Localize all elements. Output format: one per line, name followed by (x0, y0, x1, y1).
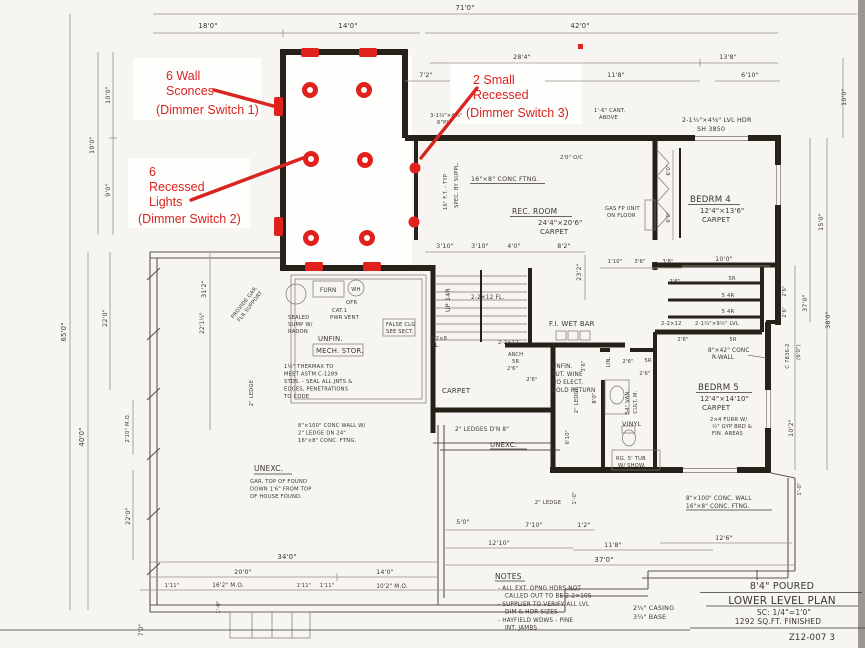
svg-text:3'6": 3'6" (581, 360, 587, 371)
svg-text:TO CODE: TO CODE (283, 394, 309, 400)
svg-text:2'6": 2'6" (639, 371, 650, 377)
svg-text:40'0": 40'0" (78, 427, 86, 446)
svg-text:7'0": 7'0" (139, 624, 145, 636)
svg-text:RADON: RADON (288, 329, 308, 335)
svg-text:2'6": 2'6" (622, 359, 633, 365)
svg-text:Recessed: Recessed (149, 180, 205, 194)
room-label-bedrm4: BEDRM 4 (690, 195, 731, 205)
svg-text:2'10" M.O.: 2'10" M.O. (125, 413, 131, 442)
wall-sconce-symbol (274, 217, 283, 236)
svg-text:2-2×12: 2-2×12 (661, 321, 682, 327)
svg-text:15'0": 15'0" (818, 213, 825, 231)
svg-text:MEET ASTM C-1289: MEET ASTM C-1289 (284, 372, 338, 378)
svg-text:SEE SECT.: SEE SECT. (386, 329, 414, 335)
svg-text:24'4"×20'6": 24'4"×20'6" (538, 219, 582, 227)
svg-text:LIN.: LIN. (606, 356, 612, 367)
sheet-number: Z12-007 3 (789, 633, 835, 643)
svg-text:37'0": 37'0" (802, 294, 809, 312)
room-label-bedrm5: BEDRM 5 (698, 383, 739, 393)
svg-text:9'0": 9'0" (105, 183, 112, 196)
title-block-scale: SC: 1/4"=1'0" (757, 608, 811, 617)
svg-text:37'0": 37'0" (594, 556, 613, 564)
svg-text:ON FLOOR: ON FLOOR (607, 213, 636, 219)
svg-text:5 4R: 5 4R (722, 293, 735, 299)
svg-text:16"×8" CONC. FTNG.: 16"×8" CONC. FTNG. (686, 504, 750, 510)
svg-text:DOWN 1'6" FROM TOP: DOWN 1'6" FROM TOP (250, 487, 312, 493)
wine-cellar-note: UNFIN. (552, 364, 573, 370)
dim-label: 71'0" (455, 4, 474, 12)
dim-label: 14'0" (338, 22, 357, 30)
svg-text:31'2": 31'2" (201, 280, 208, 298)
svg-text:5 4R: 5 4R (722, 309, 735, 315)
svg-text:12'10": 12'10" (488, 540, 510, 547)
svg-text:1'11": 1'11" (165, 583, 180, 589)
svg-text:2'6": 2'6" (782, 285, 788, 296)
dim-label: 42'0" (570, 22, 589, 30)
svg-text:INT. JAMBS: INT. JAMBS (505, 626, 537, 632)
svg-text:5'0": 5'0" (456, 519, 469, 526)
svg-text:SH 3850: SH 3850 (697, 126, 725, 133)
title-block-plan-name: LOWER LEVEL PLAN (728, 595, 836, 607)
scan-edge (858, 0, 865, 648)
svg-text:16"×8" CONC. FTNG.: 16"×8" CONC. FTNG. (298, 438, 357, 444)
svg-text:Sconces: Sconces (166, 84, 214, 98)
svg-text:12'4"×14'10": 12'4"×14'10" (700, 395, 749, 403)
svg-text:10'2": 10'2" (788, 419, 795, 437)
svg-text:Lights: Lights (149, 195, 182, 209)
dim-label: 28'4" (513, 54, 531, 61)
lvl-header-note: 2-1¾"×4⅜" LVL HDR (682, 117, 752, 124)
svg-text:10'0": 10'0" (841, 88, 848, 106)
svg-text:8'2": 8'2" (557, 243, 570, 250)
svg-text:22'0": 22'0" (102, 309, 109, 327)
svg-text:1'-6" CANT.: 1'-6" CANT. (594, 108, 626, 114)
wall-sconce-symbol (359, 48, 377, 57)
svg-text:WH: WH (351, 287, 360, 293)
svg-text:(6'0"): (6'0") (796, 344, 802, 360)
svg-text:5R: 5R (729, 337, 737, 343)
svg-text:Recessed: Recessed (473, 88, 529, 102)
svg-text:22'0": 22'0" (125, 507, 132, 525)
notes-heading: NOTES (495, 572, 522, 581)
svg-text:1'11": 1'11" (320, 583, 335, 589)
svg-text:FL.: FL. (432, 343, 440, 349)
svg-text:10'2" M.O.: 10'2" M.O. (376, 584, 408, 590)
svg-text:FURN: FURN (320, 288, 336, 294)
svg-text:DIM & HDR SIZES: DIM & HDR SIZES (505, 610, 558, 616)
svg-text:20'0": 20'0" (234, 569, 252, 576)
wall-sconce-symbol (363, 262, 381, 271)
svg-text:10'0": 10'0" (105, 86, 112, 104)
svg-text:2×4 FURR W/: 2×4 FURR W/ (710, 417, 747, 423)
floor-plan-scan: 71'0" 18'0" 14'0" 42'0" 28'4" 13'8" 7'2"… (0, 0, 865, 648)
svg-text:SPEC. BY SUPPL.: SPEC. BY SUPPL. (454, 162, 460, 208)
svg-text:2" LEDGE DN 24": 2" LEDGE DN 24" (298, 431, 346, 437)
svg-text:R-WALL: R-WALL (712, 355, 735, 361)
svg-text:3'8": 3'8" (662, 259, 673, 265)
thermax-note: 1½" THERMAX TO (284, 363, 334, 370)
svg-text:22'1½": 22'1½" (199, 312, 206, 334)
garage-foundation-note: GAR. TOP OF FOUND (250, 479, 307, 485)
casing-note: 2¼" CASING (633, 605, 674, 612)
svg-text:1'11": 1'11" (297, 583, 312, 589)
wet-bar-label: F.I. WET BAR (549, 320, 595, 328)
svg-text:FUT. WINE: FUT. WINE (552, 372, 583, 378)
svg-text:CARPET: CARPET (702, 216, 731, 224)
svg-text:1'-0": 1'-0" (572, 491, 578, 504)
svg-text:3'10": 3'10" (471, 243, 489, 250)
svg-text:½" GYP BRD &: ½" GYP BRD & (712, 423, 752, 430)
conc-wall-note-left: 8"×100" CONC WALL W/ (298, 423, 366, 429)
svg-text:2-1¾"×9½" LVL: 2-1¾"×9½" LVL (695, 320, 739, 327)
base-note: 3¼" BASE (633, 614, 666, 621)
svg-text:38'0": 38'0" (825, 311, 832, 329)
svg-text:ABOVE: ABOVE (599, 115, 618, 121)
wall-sconce-symbol (301, 48, 319, 57)
room-label-unexc-1: UNEXC. (254, 464, 283, 473)
svg-text:2-2×8: 2-2×8 (430, 336, 447, 342)
svg-text:5R: 5R (728, 276, 736, 282)
room-label-hall-carpet: CARPET (442, 387, 471, 395)
svg-text:34'0": 34'0" (277, 553, 296, 561)
dim-label: 6'10" (741, 72, 759, 79)
dim-label: 7'2" (419, 72, 432, 79)
svg-text:OFR: OFR (346, 300, 357, 306)
svg-text:SEALED: SEALED (288, 315, 309, 321)
svg-text:65'0": 65'0" (60, 322, 68, 341)
svg-text:3'10": 3'10" (436, 243, 454, 250)
dimmer-switch-1-label: (Dimmer Switch 1) (156, 103, 259, 117)
svg-text:14'0": 14'0" (376, 569, 394, 576)
dim-label: 11'8" (607, 72, 625, 79)
room-label-rec-room: REC. ROOM (512, 207, 557, 216)
wall-sconce-symbol (305, 262, 323, 271)
svg-text:FALSE CLG: FALSE CLG (386, 322, 416, 328)
title-block-poured: 8'4" POURED (750, 581, 814, 592)
sconce-annotation: 6 Wall (166, 69, 200, 83)
svg-text:2'6": 2'6" (526, 377, 537, 383)
svg-text:SUMP W/: SUMP W/ (288, 322, 313, 328)
svg-text:12'6": 12'6" (715, 535, 733, 542)
svg-text:54" VAN.: 54" VAN. (625, 390, 631, 415)
svg-text:2" LEDGES D'N 8": 2" LEDGES D'N 8" (455, 427, 509, 433)
dimmer-switch-2-label: (Dimmer Switch 2) (138, 212, 241, 226)
svg-text:2'6": 2'6" (677, 337, 688, 343)
svg-text:ARCH: ARCH (508, 352, 523, 358)
svg-text:6'0": 6'0" (666, 164, 672, 175)
recessed-annotation: 6 (149, 165, 156, 179)
svg-text:6'0": 6'0" (666, 211, 672, 222)
svg-text:4'0": 4'0" (507, 243, 520, 250)
svg-text:16'2" M.O.: 16'2" M.O. (212, 583, 244, 589)
svg-text:5R: 5R (644, 358, 652, 364)
svg-text:- ALL EXT. OPNG HDRS NOT: - ALL EXT. OPNG HDRS NOT (498, 586, 581, 592)
svg-text:16" F.T. - TYP: 16" F.T. - TYP (443, 174, 449, 210)
svg-text:CALLED OUT TO BE 2-2×10S: CALLED OUT TO BE 2-2×10S (505, 594, 592, 600)
svg-text:2'6": 2'6" (507, 366, 518, 372)
svg-text:1'10": 1'10" (608, 259, 623, 265)
conc-wall-note-right: 8"×100" CONC. WALL (686, 496, 752, 502)
svg-text:CARPET: CARPET (540, 228, 569, 236)
svg-text:COLD RETURN: COLD RETURN (552, 388, 595, 394)
room-label-mech: UNFIN. (318, 335, 343, 343)
svg-text:W/ SHOW.: W/ SHOW. (618, 463, 646, 469)
window-code: C 7836-2 (785, 343, 791, 368)
svg-text:UP 14R: UP 14R (445, 288, 452, 312)
svg-text:2'0" O/C: 2'0" O/C (560, 155, 583, 161)
dim-label: 13'8" (719, 54, 737, 61)
svg-text:1'-0": 1'-0" (797, 482, 803, 495)
svg-text:7'10": 7'10" (525, 522, 543, 529)
svg-text:OF HOUSE FOUND.: OF HOUSE FOUND. (250, 494, 302, 500)
svg-text:2-2×12: 2-2×12 (498, 340, 519, 346)
svg-text:NO ELECT.: NO ELECT. (552, 380, 583, 386)
svg-text:PWR VENT: PWR VENT (330, 315, 360, 321)
svg-text:8"×42" CONC: 8"×42" CONC (708, 348, 750, 354)
svg-text:6'10": 6'10" (565, 430, 571, 445)
svg-text:3'6": 3'6" (634, 259, 645, 265)
svg-text:19'0": 19'0" (89, 136, 96, 154)
svg-text:- HAYFIELD WDWS - PINE: - HAYFIELD WDWS - PINE (498, 618, 573, 624)
svg-text:2" LEDGE: 2" LEDGE (249, 380, 255, 406)
svg-text:STDS. - SEAL ALL JNTS &: STDS. - SEAL ALL JNTS & (284, 379, 352, 385)
svg-text:1'2": 1'2" (577, 522, 590, 529)
svg-text:2'6": 2'6" (782, 306, 788, 317)
small-recessed-symbol (410, 163, 421, 174)
dimmer-switch-3-label: (Dimmer Switch 3) (466, 106, 569, 120)
svg-text:1'-0": 1'-0" (216, 600, 222, 613)
svg-text:VINYL: VINYL (622, 421, 642, 428)
svg-text:- SUPPLIER TO VERIFY ALL LVL: - SUPPLIER TO VERIFY ALL LVL (498, 602, 590, 608)
svg-text:EDGES, PENETRATIONS: EDGES, PENETRATIONS (284, 387, 348, 393)
svg-text:CULT. M.: CULT. M. (633, 390, 639, 413)
svg-text:2" LEDGE: 2" LEDGE (535, 500, 561, 506)
title-block-sqft: 1292 SQ.FT. FINISHED (735, 617, 821, 626)
svg-text:RG. 5' TUB: RG. 5' TUB (616, 456, 646, 462)
svg-text:12'4"×13'6": 12'4"×13'6" (700, 207, 744, 215)
svg-text:5R: 5R (512, 359, 520, 365)
svg-text:GAS FP UNIT: GAS FP UNIT (605, 206, 640, 212)
svg-text:CARPET: CARPET (702, 404, 731, 412)
svg-text:11'8": 11'8" (604, 542, 622, 549)
svg-text:2'6": 2'6" (669, 279, 680, 285)
small-recessed-symbol (409, 217, 420, 228)
svg-text:10'0": 10'0" (715, 256, 733, 263)
dim-label: 18'0" (198, 22, 217, 30)
footing-note: 16"×8" CONC FTNG. (471, 176, 539, 183)
svg-text:CAT.1: CAT.1 (332, 308, 347, 314)
svg-text:2-2×12 FL.: 2-2×12 FL. (471, 295, 504, 301)
small-recessed-annotation: 2 Small (473, 73, 515, 87)
svg-text:FIN. AREAS: FIN. AREAS (712, 431, 743, 437)
svg-text:8'0": 8'0" (592, 392, 598, 403)
red-mark (578, 44, 583, 49)
wall-sconce-symbol (274, 97, 283, 116)
svg-text:23'2": 23'2" (576, 263, 583, 281)
room-label-unexc-2: UNEXC. (490, 441, 517, 449)
svg-text:MECH. STOR.: MECH. STOR. (316, 347, 364, 355)
